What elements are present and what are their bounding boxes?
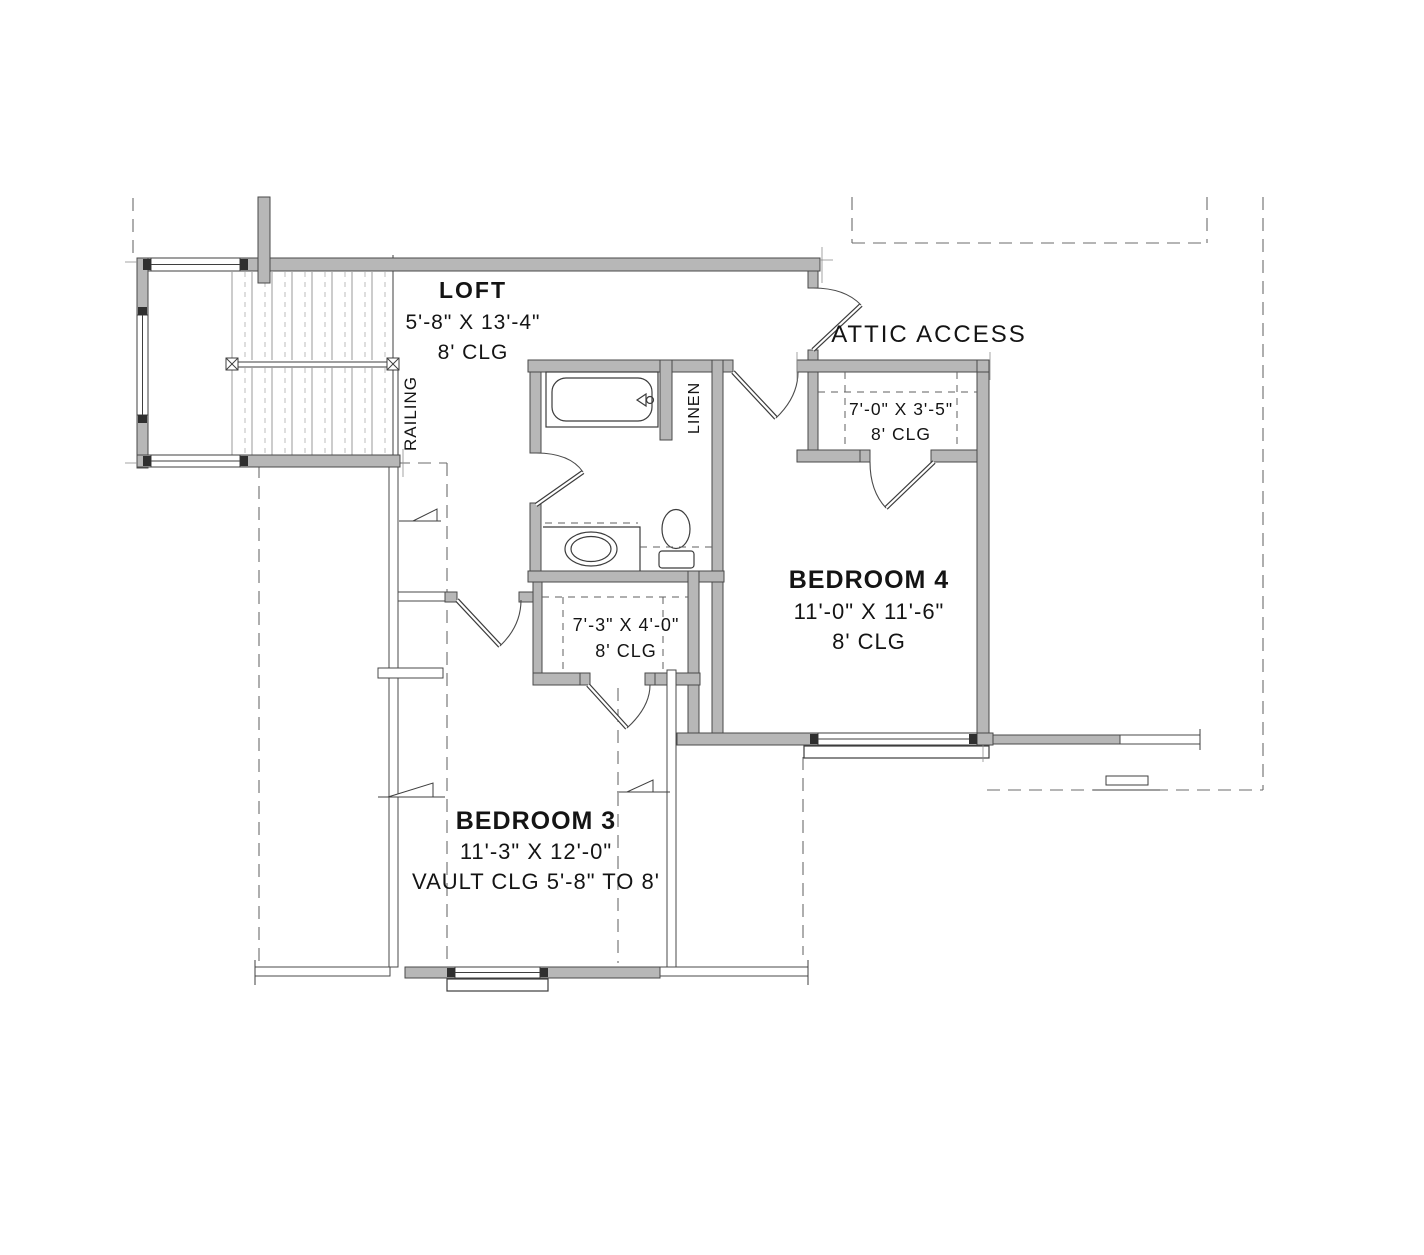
attic-access-label: ATTIC ACCESS [831,321,1027,348]
hall-closet-dims: 7'-3" X 4'-0" [573,615,680,635]
attic-closet-door [870,462,934,508]
bedroom4-ceiling: 8' CLG [832,629,906,654]
bedroom4-dims: 11'-0" X 11'-6" [794,599,945,624]
attic-closet-dims: 7'-0" X 3'-5" [849,399,953,419]
newel-post [387,358,399,370]
bathroom-door [536,453,583,505]
bathtub [546,372,658,427]
window [137,315,148,415]
bedroom4-south-wall [677,733,818,745]
stair-treads [232,272,385,455]
attic-closet-ceiling: 8' CLG [871,424,931,444]
bedroom4-west-wall [712,360,723,745]
chimney-stub [258,197,270,283]
hall-closet-door [588,685,650,728]
loft-ceiling: 8' CLG [438,341,509,364]
bedroom4-label: BEDROOM 4 [789,566,949,594]
bedroom4-east-wall [977,372,989,745]
hall-door [733,372,798,418]
roof-vent [1093,776,1160,790]
toilet [640,510,712,569]
window [447,967,548,991]
railing-label: RAILING [401,376,420,451]
bedroom3-east-wall [667,670,676,967]
thin-walls [255,467,1200,976]
bedroom3-door [457,600,521,646]
window [151,258,240,271]
bedroom3-label: BEDROOM 3 [456,807,616,835]
bedroom3-dims: 11'-3" X 12'-0" [460,839,612,864]
window-sill [447,979,548,991]
stairs [226,255,399,467]
floor-plan: LOFT 5'-8" X 13'-4" 8' CLG RAILING ATTIC… [0,0,1424,1255]
window-sill [804,746,989,758]
bedroom3-ceiling: VAULT CLG 5'-8" TO 8' [412,869,660,894]
wall-marker [399,509,441,521]
bedroom3-west-wall [389,467,398,967]
floor-plan-drawing: LOFT 5'-8" X 13'-4" 8' CLG RAILING ATTIC… [0,0,1424,1255]
newel-post [226,358,238,370]
wall-marker [378,783,445,797]
vanity-sink [543,523,640,571]
window [804,733,989,758]
window [151,455,240,467]
linen-label: LINEN [686,382,703,434]
loft-dims: 5'-8" X 13'-4" [406,311,541,334]
wall-marker [617,780,670,792]
loft-label: LOFT [439,277,507,303]
hall-closet-ceiling: 8' CLG [595,641,656,661]
